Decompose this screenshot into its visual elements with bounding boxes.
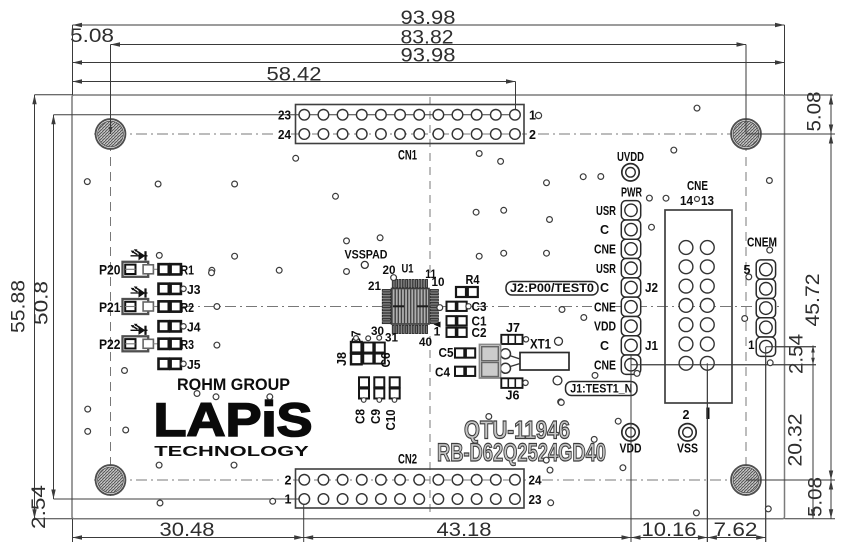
svg-text:1: 1	[748, 340, 755, 352]
svg-text:R1: R1	[181, 263, 195, 278]
svg-text:VDD: VDD	[594, 320, 616, 334]
svg-text:CN2: CN2	[398, 452, 417, 467]
svg-text:31: 31	[385, 331, 398, 345]
svg-text:ROHM GROUP: ROHM GROUP	[177, 376, 290, 394]
svg-text:C5: C5	[439, 346, 454, 360]
svg-text:CNE: CNE	[687, 178, 708, 193]
svg-text:J4: J4	[187, 320, 201, 335]
svg-text:50.8: 50.8	[32, 281, 53, 325]
svg-text:CNE: CNE	[594, 243, 616, 257]
svg-text:C10: C10	[384, 409, 398, 430]
svg-text:CN1: CN1	[398, 148, 417, 163]
svg-text:24: 24	[278, 128, 291, 142]
svg-text:45.72: 45.72	[803, 274, 824, 327]
svg-text:P22: P22	[99, 336, 121, 352]
svg-text:R4: R4	[466, 272, 481, 287]
svg-text:2: 2	[285, 473, 292, 487]
svg-text:C3: C3	[472, 300, 487, 314]
svg-text:J5: J5	[187, 357, 201, 372]
svg-text:XT1: XT1	[530, 337, 551, 352]
svg-text:14: 14	[680, 194, 693, 208]
svg-text:58.42: 58.42	[267, 65, 322, 86]
svg-text:UVDD: UVDD	[617, 149, 644, 164]
svg-text:C: C	[600, 339, 609, 353]
svg-text:C8: C8	[354, 409, 368, 424]
svg-text:5.08: 5.08	[806, 477, 827, 517]
svg-text:VSS: VSS	[677, 442, 698, 456]
svg-text:2.54: 2.54	[787, 334, 808, 374]
svg-text:C: C	[600, 281, 609, 295]
svg-text:USR: USR	[596, 204, 616, 218]
svg-text:23: 23	[278, 108, 291, 122]
svg-text:P21: P21	[99, 299, 121, 315]
svg-text:USR: USR	[596, 262, 616, 276]
svg-text:C4: C4	[435, 366, 450, 380]
svg-text:13: 13	[701, 194, 714, 208]
svg-text:7.62: 7.62	[714, 520, 758, 541]
svg-text:TECHNOLOGY: TECHNOLOGY	[154, 444, 309, 460]
svg-text:93.98: 93.98	[401, 46, 456, 67]
svg-text:J7: J7	[506, 320, 520, 335]
svg-text:55.88: 55.88	[9, 280, 30, 333]
svg-text:5.08: 5.08	[805, 92, 826, 132]
svg-text:J3: J3	[187, 282, 201, 297]
svg-text:RB-D62Q2524GD40: RB-D62Q2524GD40	[437, 439, 606, 467]
svg-text:2: 2	[529, 128, 536, 142]
svg-text:23: 23	[529, 493, 542, 507]
svg-text:J1: J1	[645, 339, 658, 353]
svg-text:2.54: 2.54	[29, 484, 50, 529]
svg-text:LAPIS: LAPIS	[154, 394, 313, 447]
svg-text:21: 21	[368, 279, 381, 293]
svg-text:5.08: 5.08	[70, 26, 114, 47]
svg-text:C9: C9	[369, 409, 383, 424]
svg-text:VSSPAD: VSSPAD	[345, 249, 388, 261]
svg-text:J2:P00/TEST0: J2:P00/TEST0	[510, 283, 594, 295]
svg-text:1: 1	[434, 325, 441, 339]
svg-text:30.48: 30.48	[160, 520, 215, 541]
svg-text:J8: J8	[335, 352, 349, 366]
svg-text:24: 24	[529, 473, 542, 487]
svg-text:CNE: CNE	[594, 358, 616, 372]
svg-text:C6: C6	[379, 352, 393, 367]
svg-text:R2: R2	[181, 300, 195, 315]
svg-text:10.16: 10.16	[642, 520, 697, 541]
svg-text:C2: C2	[472, 326, 487, 340]
svg-text:93.98: 93.98	[401, 8, 456, 29]
svg-text:C: C	[600, 223, 609, 237]
svg-text:J1:TEST1_N: J1:TEST1_N	[570, 384, 632, 396]
svg-text:20.32: 20.32	[786, 414, 807, 467]
svg-text:40: 40	[419, 335, 432, 349]
svg-text:J2: J2	[645, 281, 658, 295]
svg-text:R3: R3	[181, 337, 195, 352]
svg-text:2: 2	[683, 408, 690, 422]
svg-text:1: 1	[285, 493, 292, 507]
svg-text:CNE: CNE	[594, 300, 616, 314]
svg-text:PWR: PWR	[621, 185, 642, 200]
svg-text:10: 10	[432, 275, 445, 289]
svg-text:43.18: 43.18	[437, 520, 492, 541]
svg-text:CNEM: CNEM	[747, 236, 777, 250]
svg-text:P20: P20	[99, 262, 121, 278]
svg-text:U1: U1	[402, 262, 414, 276]
svg-text:J6: J6	[506, 388, 520, 403]
